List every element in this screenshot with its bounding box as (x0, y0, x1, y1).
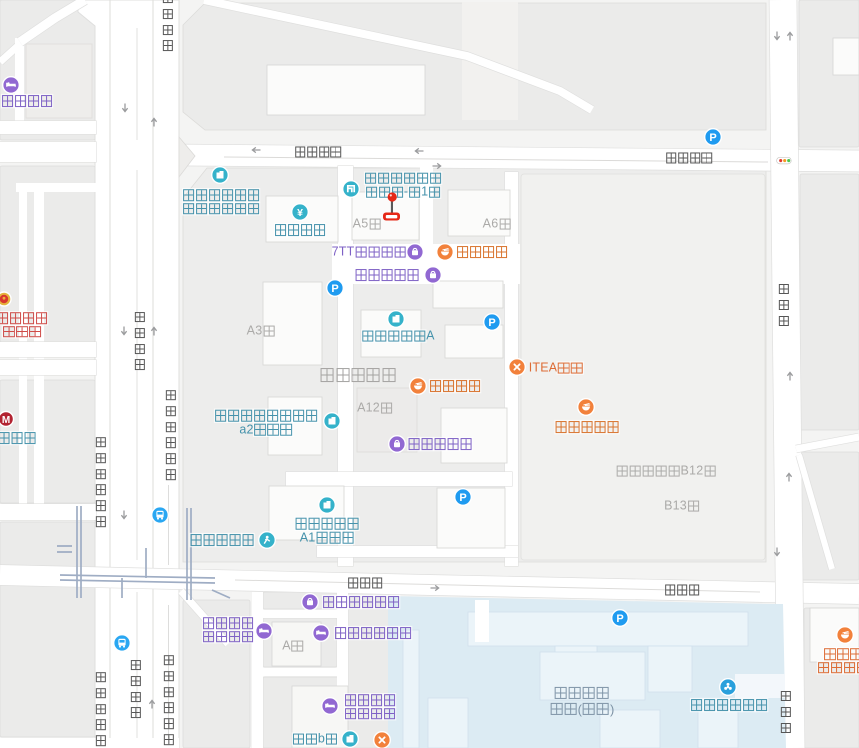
svg-text:M: M (2, 415, 10, 426)
svg-text:P: P (709, 132, 716, 144)
svg-text:P: P (459, 492, 466, 504)
svg-text:P: P (331, 283, 338, 295)
svg-text:¥: ¥ (297, 207, 303, 219)
svg-text:P: P (488, 317, 495, 329)
svg-text:P: P (616, 613, 623, 625)
